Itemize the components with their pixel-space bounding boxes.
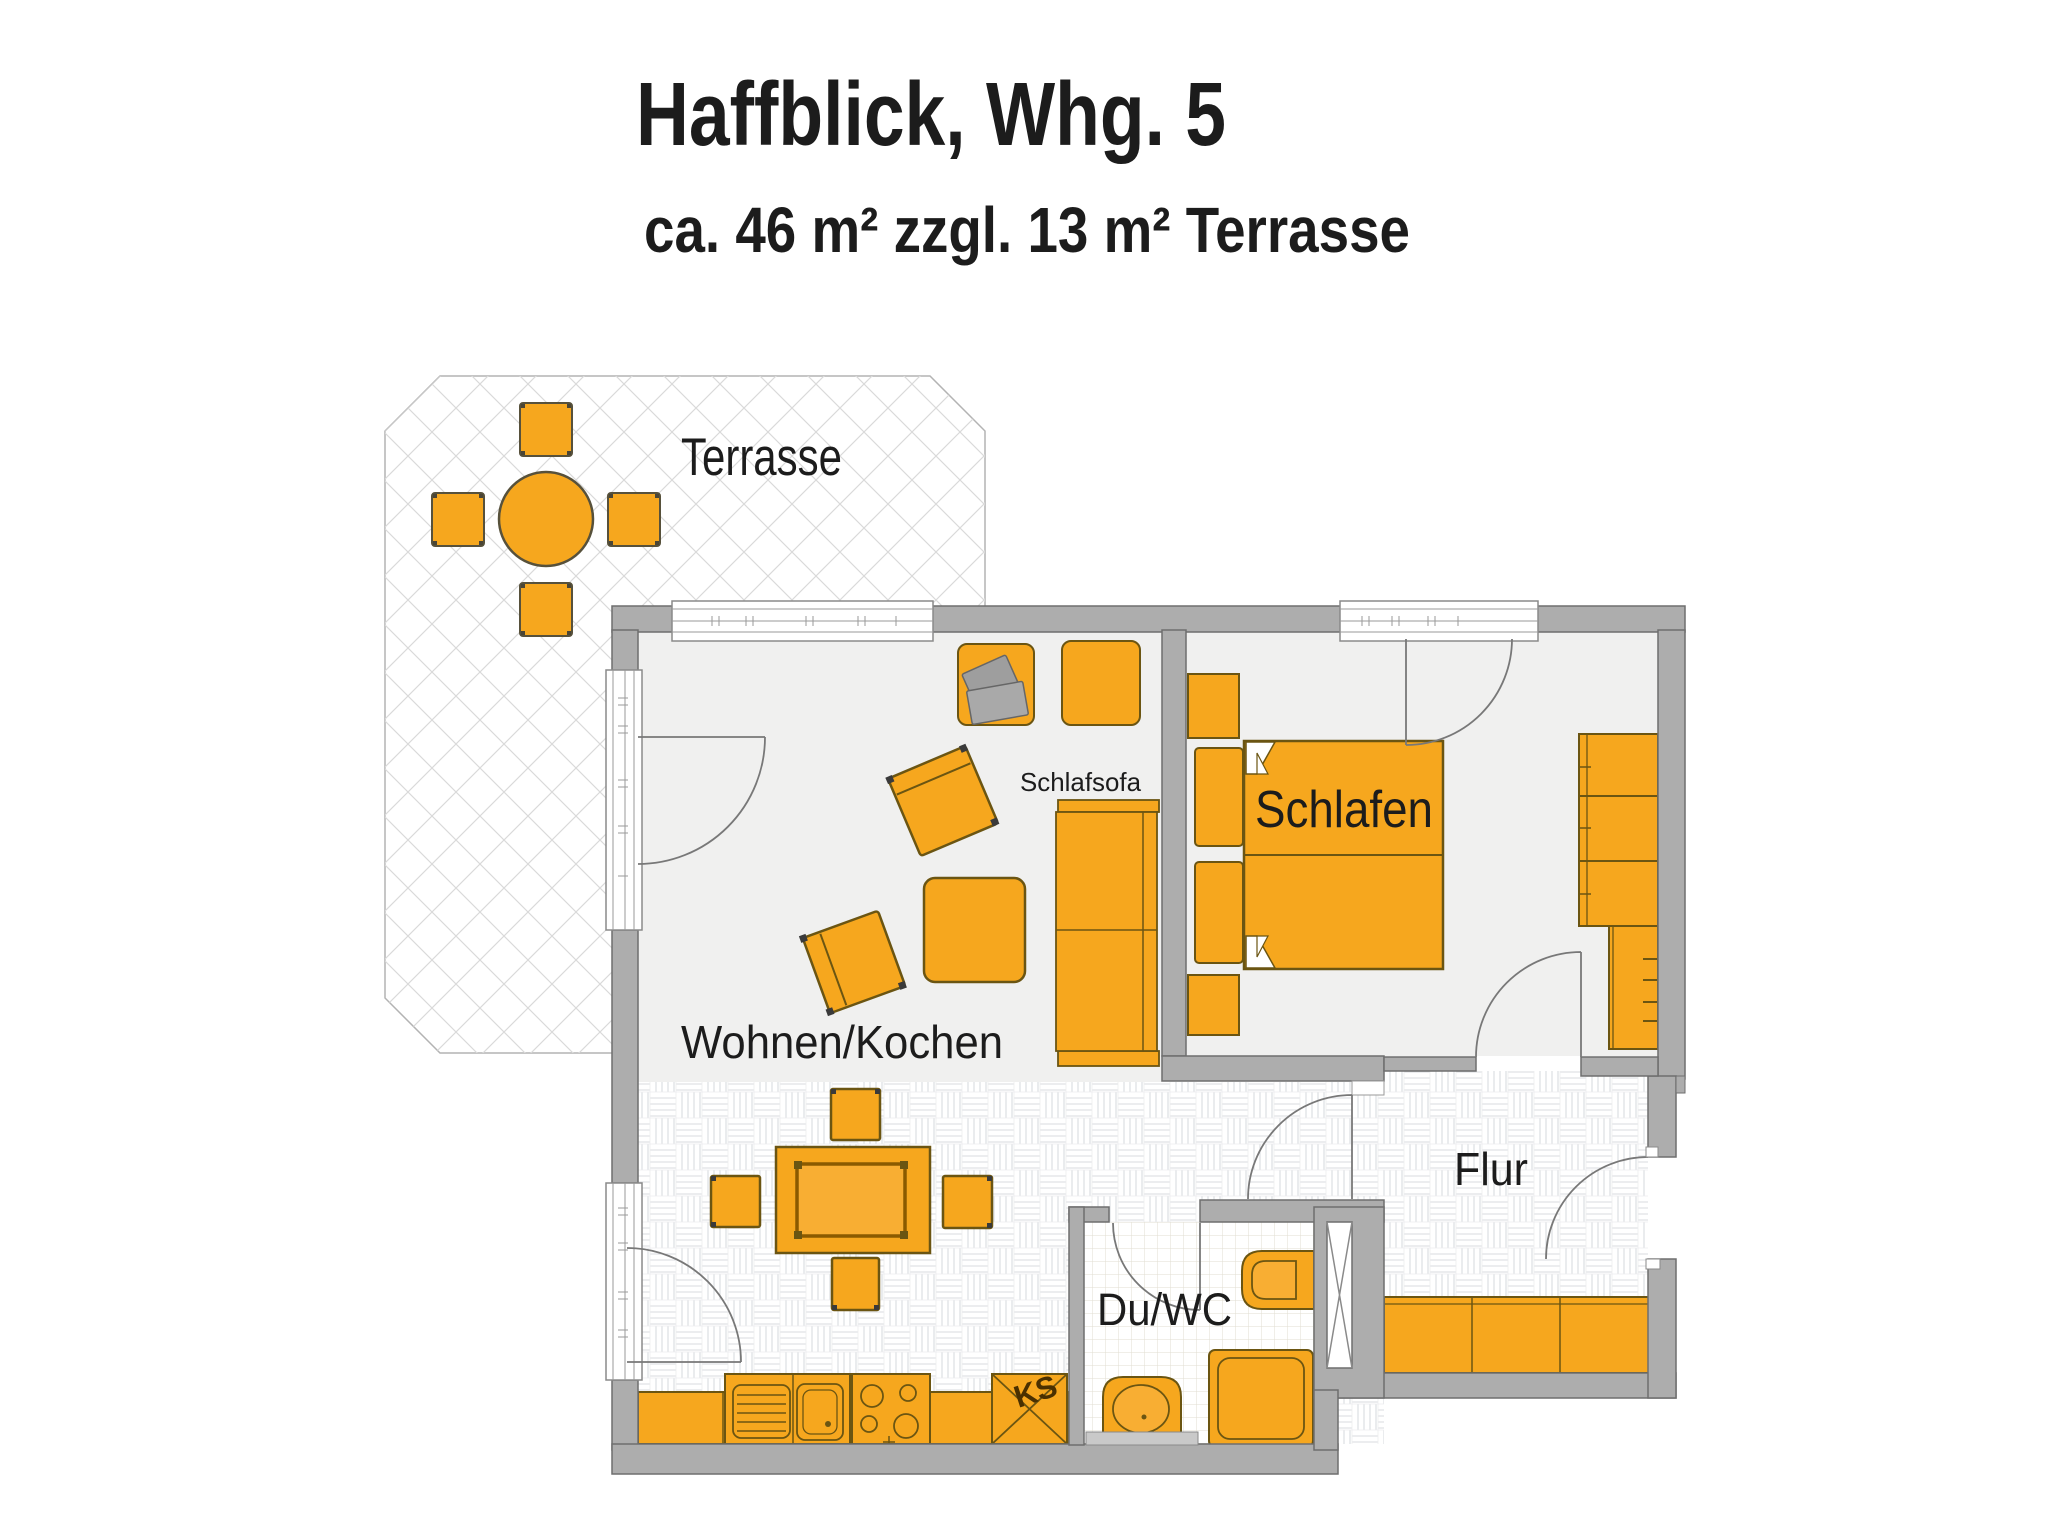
svg-text:Schlafsofa: Schlafsofa [1020,767,1142,797]
svg-text:Flur: Flur [1454,1143,1528,1195]
svg-text:Du/WC: Du/WC [1097,1284,1232,1335]
svg-text:Haffblick, Whg. 5: Haffblick, Whg. 5 [636,65,1226,165]
svg-text:Terrasse: Terrasse [681,428,842,487]
svg-text:Wohnen/Kochen: Wohnen/Kochen [681,1016,1003,1068]
svg-text:Schlafen: Schlafen [1255,781,1433,839]
svg-text:ca. 46 m² zzgl. 13 m² Terras: ca. 46 m² zzgl. 13 m² Terrasse [644,194,1410,266]
